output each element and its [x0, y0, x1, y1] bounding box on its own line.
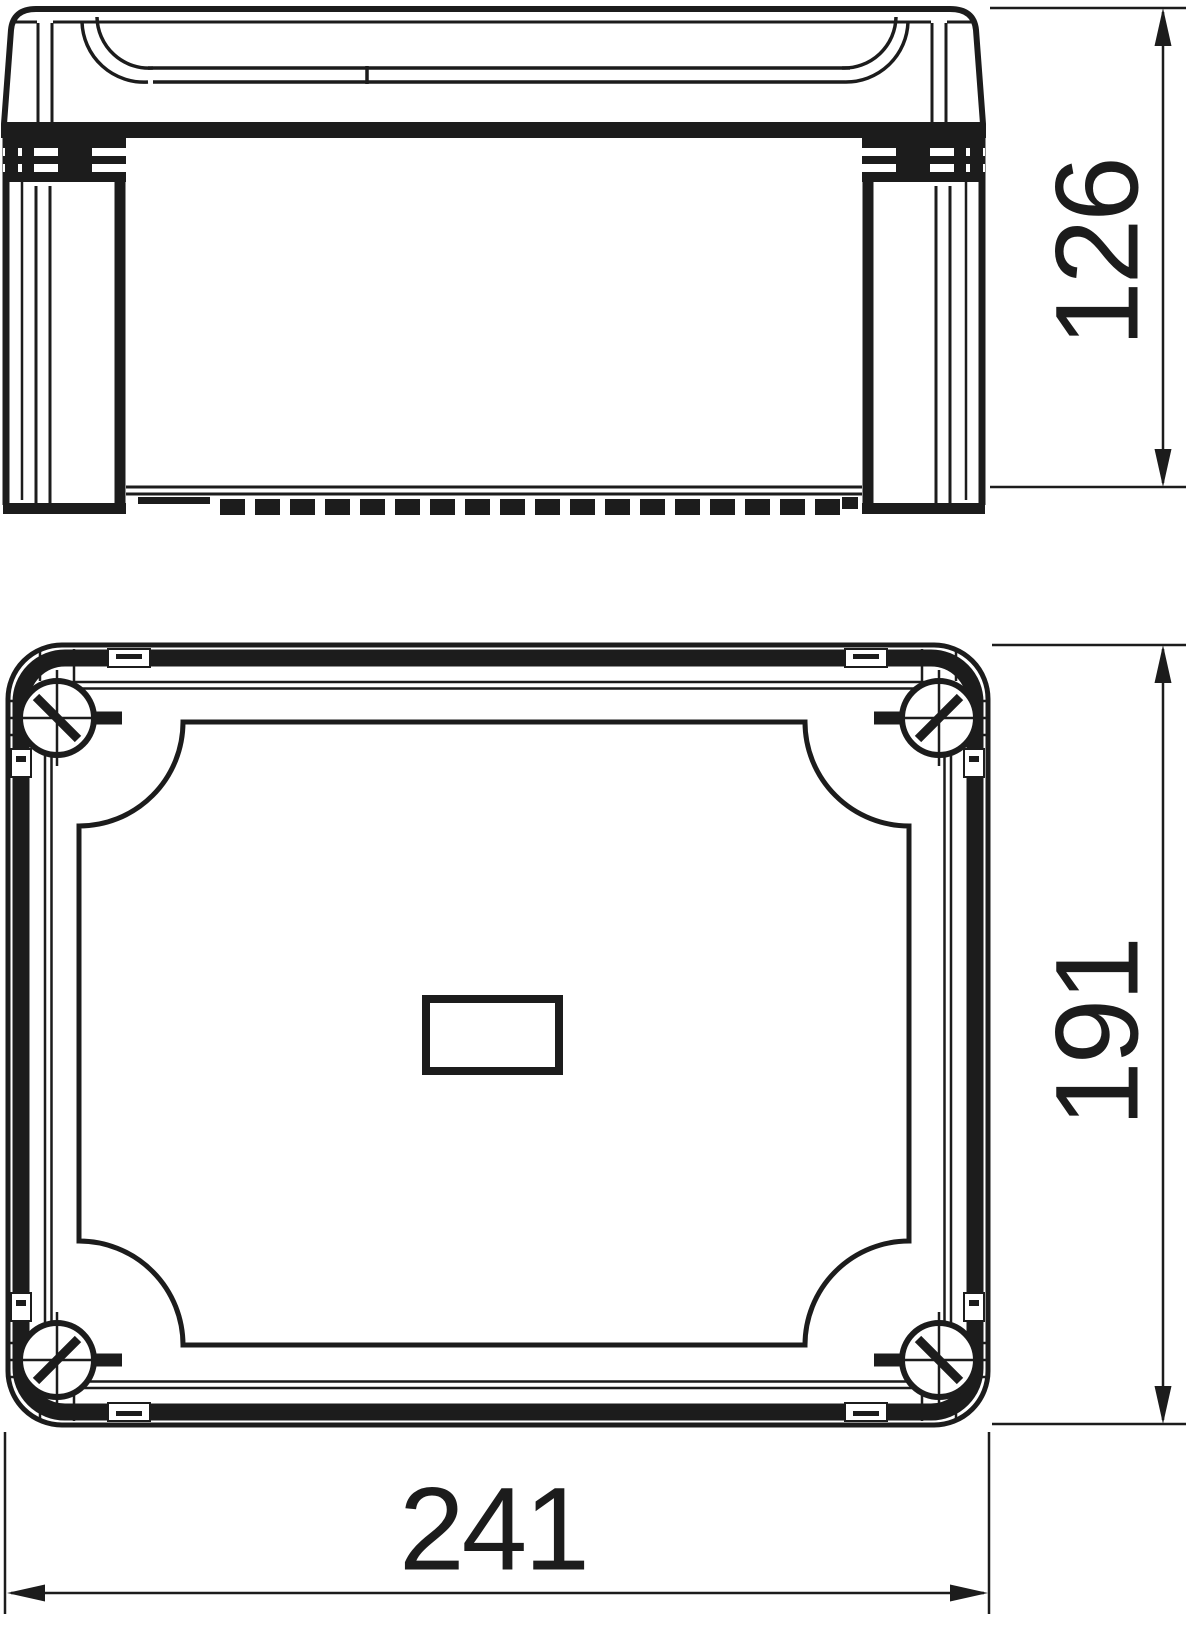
flange-right — [862, 138, 985, 514]
dim-label-241: 241 — [399, 1463, 587, 1595]
outer-outline — [8, 645, 988, 1425]
lid-corner-dome-edges — [38, 23, 946, 122]
lid-profile — [3, 9, 985, 138]
dim-plan-width: 241 — [5, 1432, 989, 1614]
box-bottom — [126, 487, 862, 515]
enclosure-dimension-drawing: 126 — [0, 0, 1200, 1628]
lid-rim-band — [3, 122, 985, 138]
arrow-down-icon — [1155, 1386, 1172, 1424]
dimension-drawing-page: 126 — [0, 0, 1200, 1628]
inner-lid-panel — [79, 722, 909, 1345]
dim-label-126: 126 — [1031, 159, 1163, 347]
dim-label-191: 191 — [1031, 939, 1163, 1127]
flange-left — [3, 138, 126, 514]
side-view — [3, 9, 985, 515]
rim-band — [21, 658, 975, 1412]
plan-view — [8, 645, 988, 1425]
arrow-down-icon — [1155, 449, 1172, 487]
label-window — [426, 999, 559, 1071]
arrow-right-icon — [950, 1585, 988, 1602]
arrow-up-icon — [1155, 8, 1172, 46]
knockout-teeth — [138, 497, 858, 515]
rim-notches — [11, 649, 984, 1421]
arrow-left-icon — [7, 1585, 45, 1602]
dim-side-height: 126 — [990, 8, 1186, 487]
dim-plan-height: 191 — [992, 645, 1186, 1424]
arrow-up-icon — [1155, 645, 1172, 683]
